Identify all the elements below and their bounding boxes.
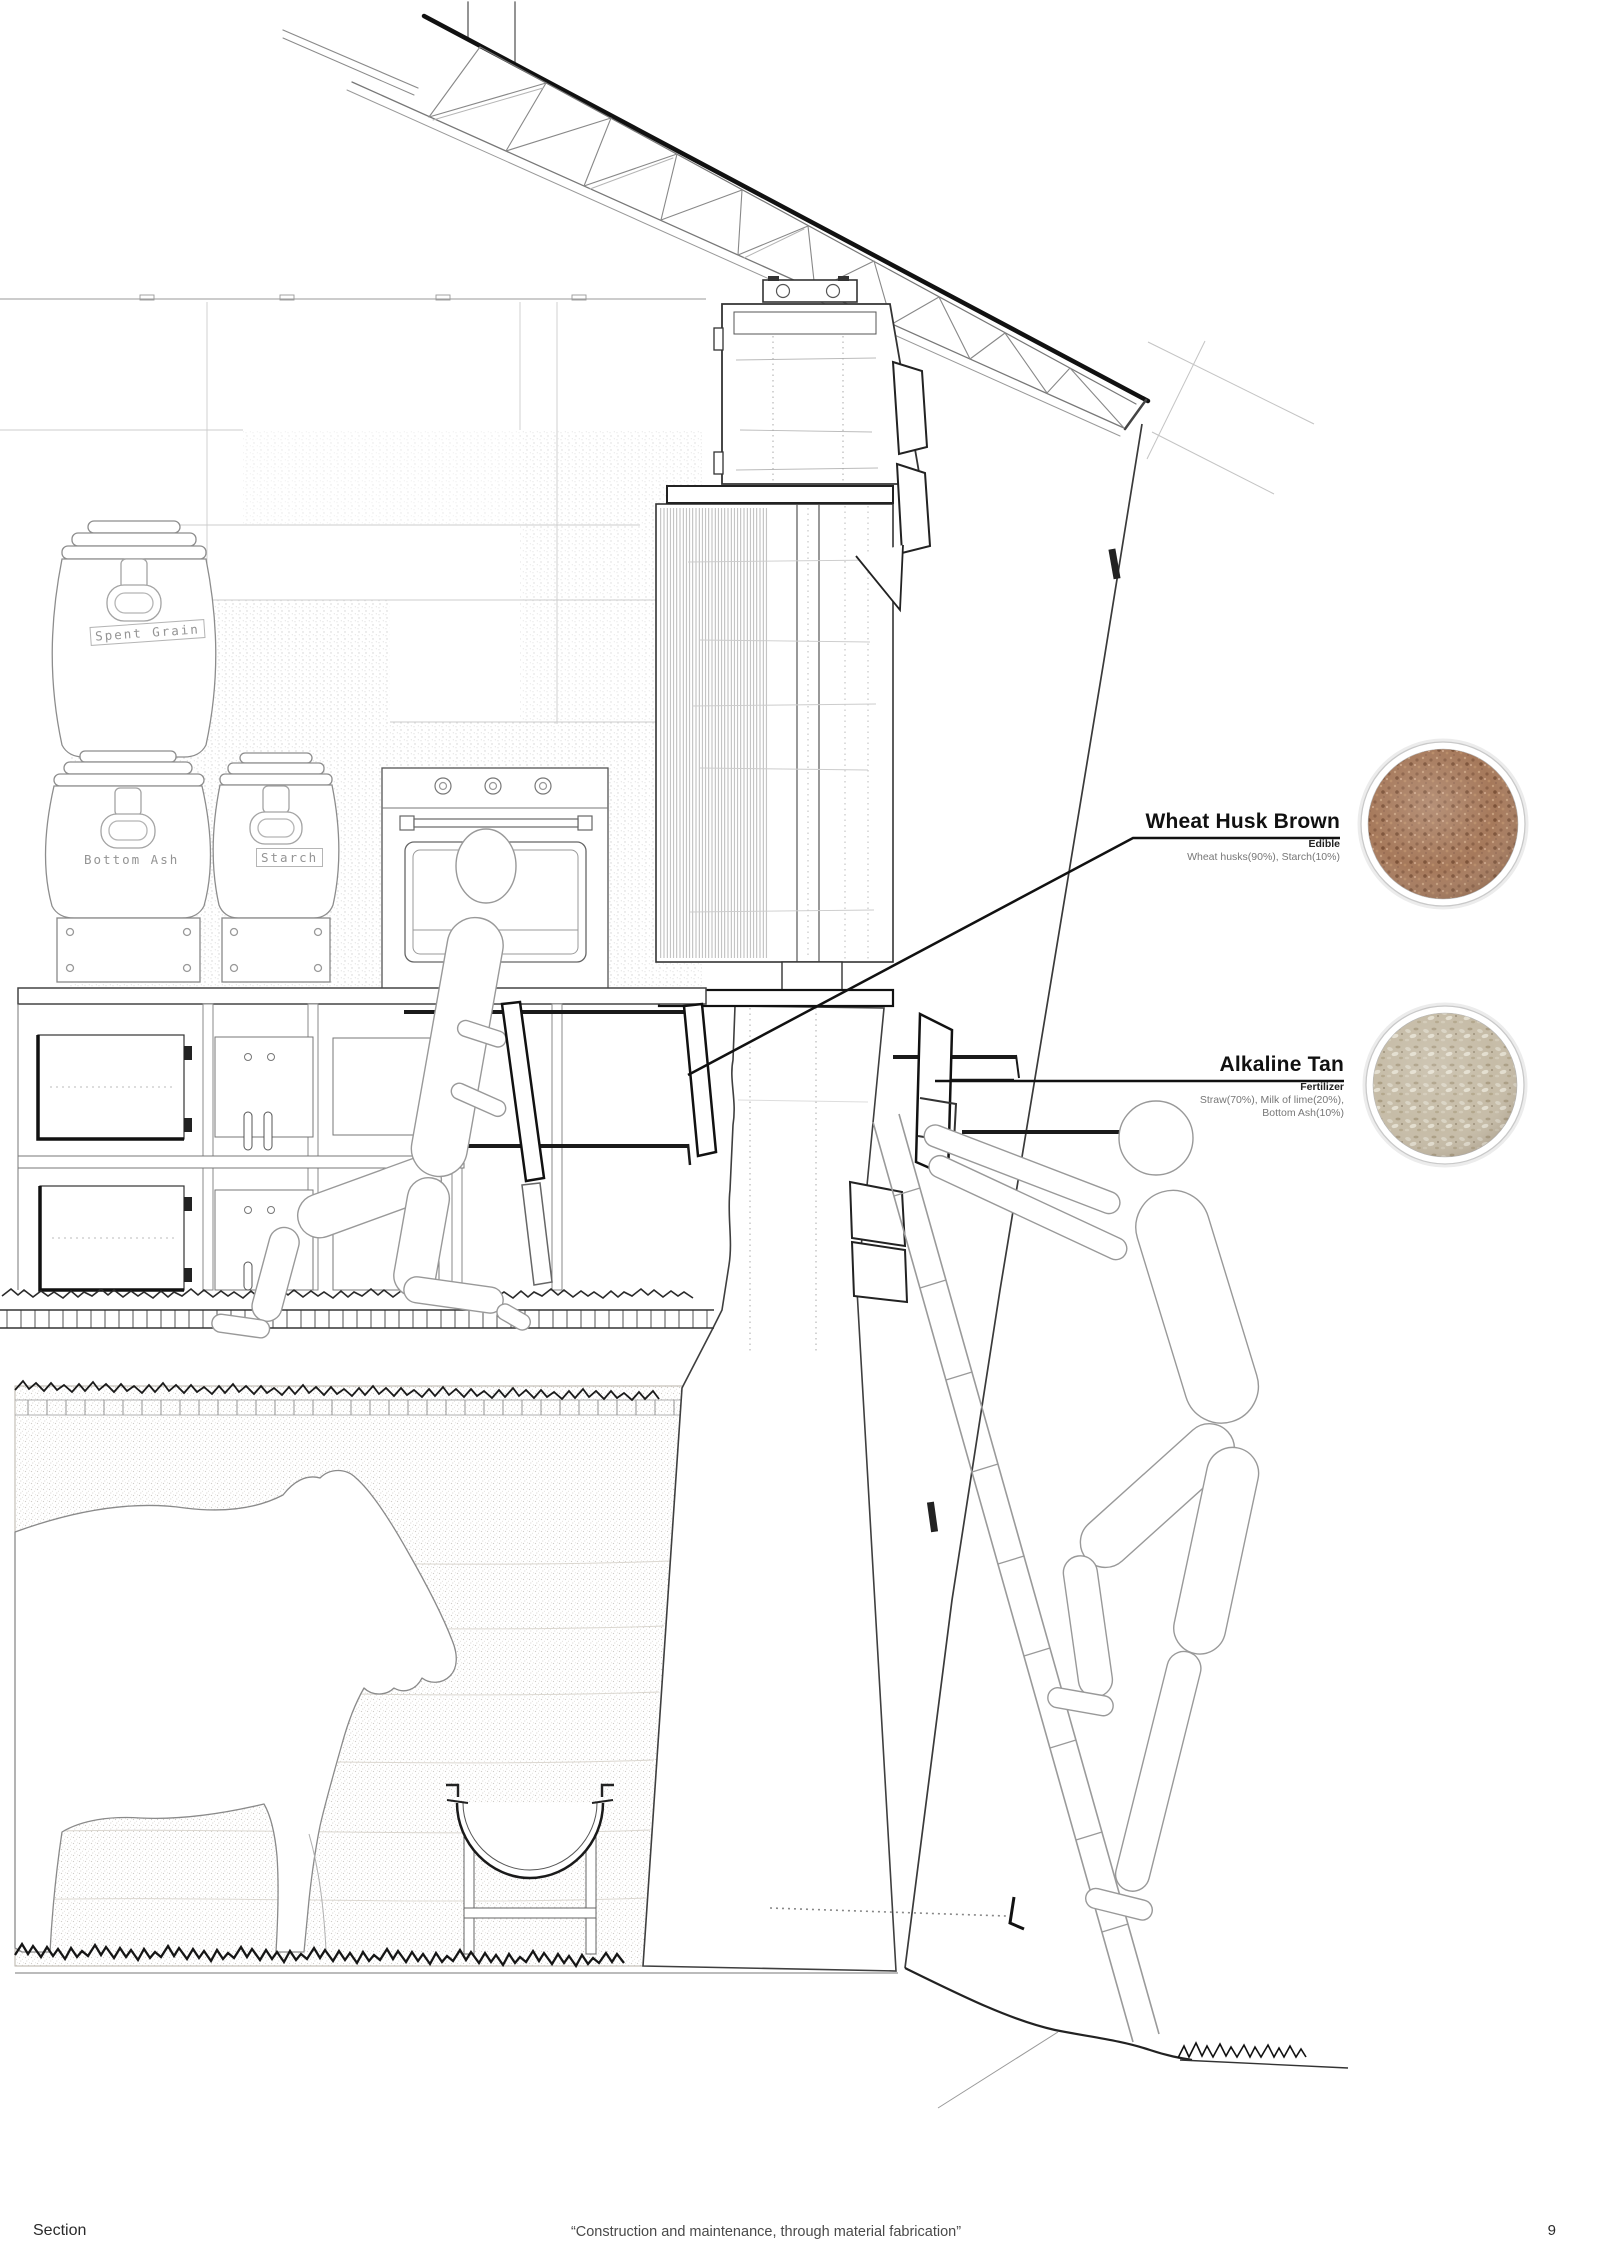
roof-projection-lines [1147,341,1314,494]
material-composition: Bottom Ash(10%) [924,1107,1344,1120]
wall-panel [684,1004,716,1156]
oven-handle-end [578,816,592,830]
material-callout-alkaline-tan: Alkaline Tan Fertilizer Straw(70%), Milk… [924,1053,1344,1120]
turf-root-zone [15,1400,683,1415]
leaning-panel [522,1183,552,1285]
climbing-worker [921,1101,1267,1922]
truss-double-diagonals [433,88,804,258]
envelope-splice [927,1502,938,1533]
tower-body [643,1006,896,1971]
oven-handle-end [400,816,414,830]
material-category: Fertilizer [924,1080,1344,1094]
open-drawer [38,1035,192,1139]
barrel-starch [213,753,339,918]
barrel-label-starch: Starch [256,848,323,867]
page-number: 9 [1548,2222,1556,2239]
material-composition: Wheat husks(90%), Starch(10%) [920,851,1340,864]
wall-panel [852,1242,907,1302]
drawing-sheet: Spent Grain Bottom Ash Starch Wheat Husk… [0,0,1600,2262]
roof-truss [283,2,1148,436]
cylinder-neck [782,962,842,992]
barrel-bottom-ash [45,751,210,918]
oven-handle-bar [414,819,578,827]
ground-floor [0,1289,714,1328]
material-name: Wheat Husk Brown [920,810,1340,834]
swatch-alkaline-tan [1364,1004,1526,1166]
wall-panel [850,1182,905,1246]
cylinder-hatch [660,508,768,958]
material-category: Edible [920,837,1340,851]
anchor-hook [1010,1897,1024,1929]
hopper-flap [893,362,927,454]
barrel-crates [57,918,330,982]
brick-course [0,1310,714,1328]
material-name: Alkaline Tan [924,1053,1344,1077]
section-drawing [0,0,1600,2262]
sheet-caption: “Construction and maintenance, through m… [0,2224,1532,2240]
counter-and-cabinets [18,988,706,1290]
cylinder-top-flange [667,486,893,503]
hopper-flap [897,464,930,553]
grass-tufts-right [1178,2043,1306,2058]
ground-line-right [905,1968,1348,2108]
cabinet-box [215,1037,313,1150]
material-composition: Straw(70%), Milk of lime(20%), [924,1094,1344,1107]
bolt-hole [827,285,840,298]
counter-top [18,988,706,1004]
bolt-hole [777,285,790,298]
held-panel [502,1002,544,1181]
barrel-label-bottom-ash: Bottom Ash [84,852,179,867]
material-callout-wheat-husk: Wheat Husk Brown Edible Wheat husks(90%)… [920,810,1340,864]
swatch-wheat-husk-brown [1359,740,1527,908]
open-drawer [40,1186,192,1290]
worker-head [456,829,516,903]
